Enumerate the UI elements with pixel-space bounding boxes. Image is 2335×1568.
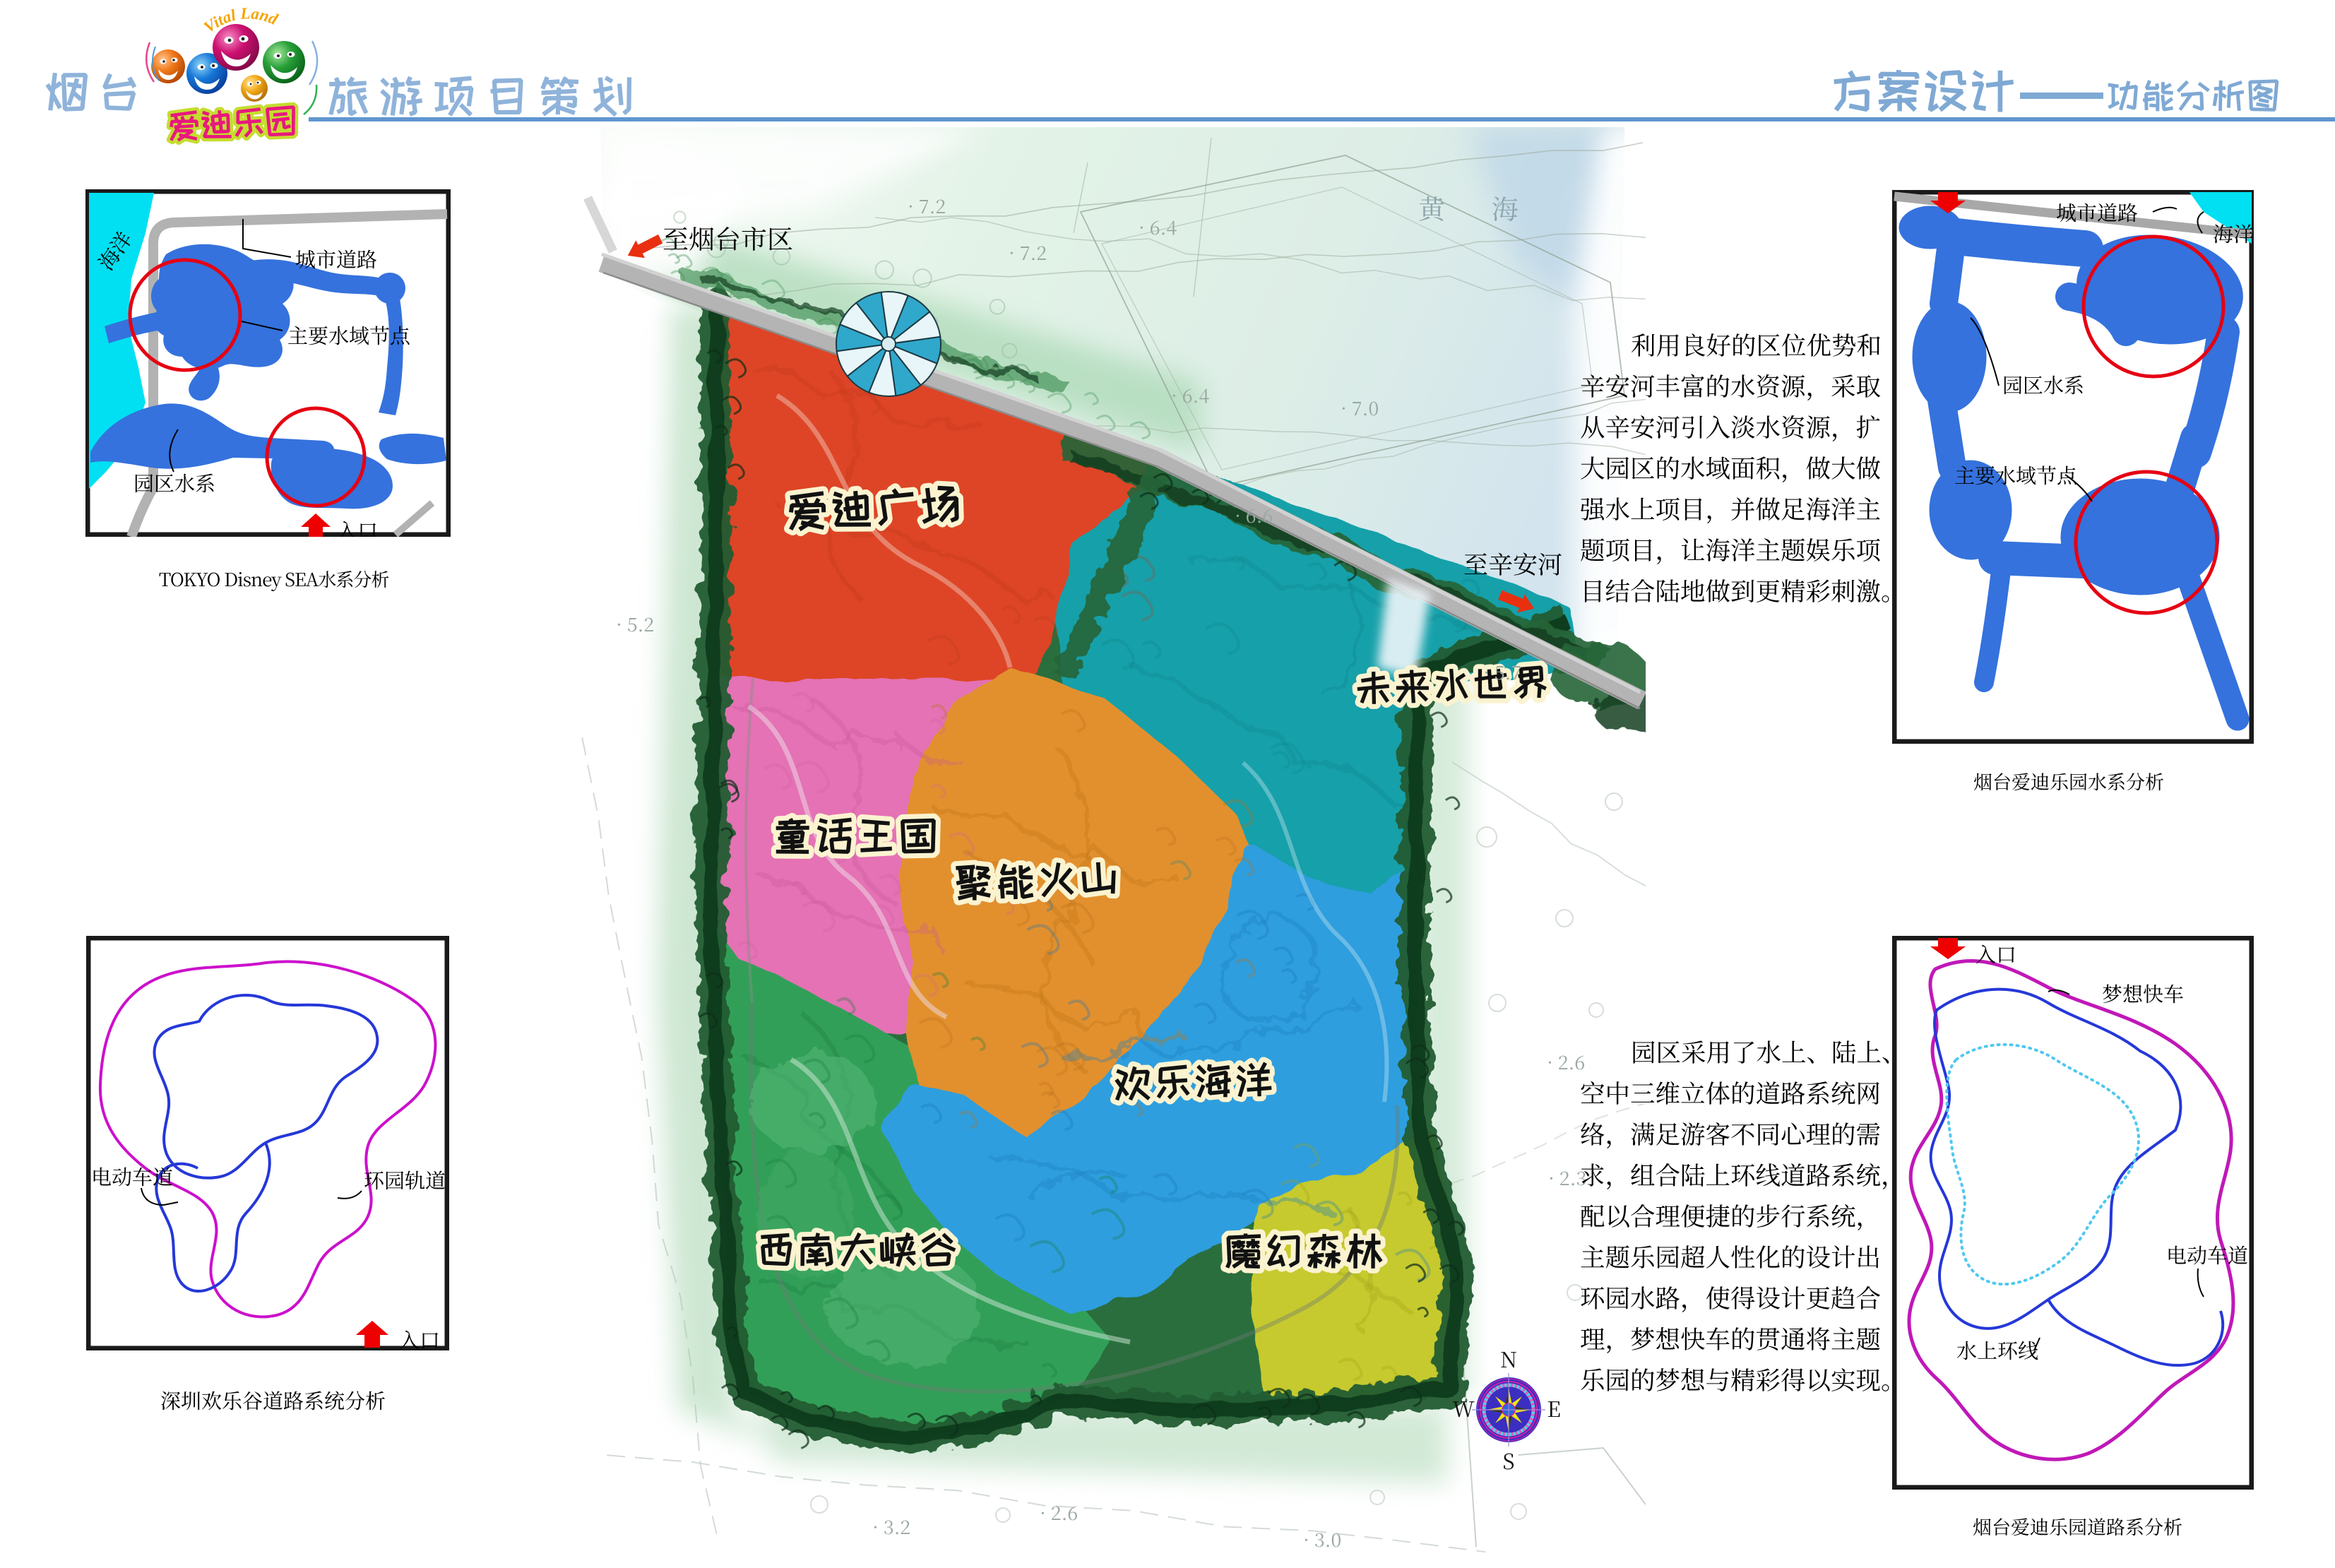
svg-text:至辛安河: 至辛安河	[1463, 546, 1562, 581]
svg-text:城市道路: 城市道路	[2056, 198, 2138, 227]
svg-text:入口: 入口	[1975, 939, 2016, 968]
svg-text:园区水系: 园区水系	[2002, 370, 2084, 399]
svg-text:· 6.4: · 6.4	[1171, 381, 1209, 408]
svg-text:主要水域节点: 主要水域节点	[287, 321, 411, 350]
svg-text:入口: 入口	[399, 1325, 440, 1350]
svg-text:· 5.7: · 5.7	[1483, 658, 1521, 685]
svg-text:欢乐海洋: 欢乐海洋	[1113, 1057, 1276, 1104]
svg-text:· 6.6: · 6.6	[1235, 501, 1273, 528]
svg-text:· 2.6: · 2.6	[1040, 1498, 1078, 1526]
svg-text:园区水系: 园区水系	[133, 468, 215, 497]
svg-text:爱迪乐园: 爱迪乐园	[167, 102, 298, 144]
svg-text:聚能火山: 聚能火山	[953, 856, 1122, 904]
svg-text:黄 海: 黄 海	[1418, 188, 1538, 227]
svg-text:N: N	[1500, 1343, 1517, 1374]
svg-text:西南大峡谷: 西南大峡谷	[758, 1228, 961, 1269]
svg-text:W: W	[1452, 1392, 1475, 1423]
svg-text:E: E	[1547, 1392, 1561, 1423]
svg-text:· 6.4: · 6.4	[1139, 213, 1177, 240]
svg-text:魔幻森林: 魔幻森林	[1224, 1230, 1386, 1271]
svg-text:未来水世界: 未来水世界	[1355, 661, 1552, 708]
svg-text:· 7.2: · 7.2	[908, 191, 946, 219]
svg-text:电动车道: 电动车道	[91, 1162, 173, 1191]
svg-text:电动车道: 电动车道	[2166, 1240, 2248, 1269]
svg-text:· 7.0: · 7.0	[1341, 393, 1379, 421]
svg-text:城市道路: 城市道路	[295, 244, 377, 273]
svg-text:海洋: 海洋	[2213, 219, 2254, 248]
svg-text:爱迪广场: 爱迪广场	[785, 480, 965, 534]
svg-text:S: S	[1502, 1444, 1514, 1475]
svg-text:· 7.2: · 7.2	[1009, 238, 1047, 266]
svg-text:梦想快车: 梦想快车	[2102, 979, 2184, 1008]
svg-text:水上环线: 水上环线	[1956, 1336, 2038, 1365]
svg-text:至烟台市区: 至烟台市区	[663, 218, 793, 256]
svg-text:· 3.2: · 3.2	[872, 1512, 910, 1540]
svg-text:入口: 入口	[337, 516, 378, 537]
svg-text:主要水域节点: 主要水域节点	[1954, 461, 2078, 489]
svg-text:· 3.0: · 3.0	[1303, 1525, 1341, 1552]
svg-text:童话王国: 童话王国	[773, 814, 941, 857]
svg-text:· 5.2: · 5.2	[616, 610, 654, 637]
svg-text:环园轨道: 环园轨道	[364, 1165, 446, 1194]
